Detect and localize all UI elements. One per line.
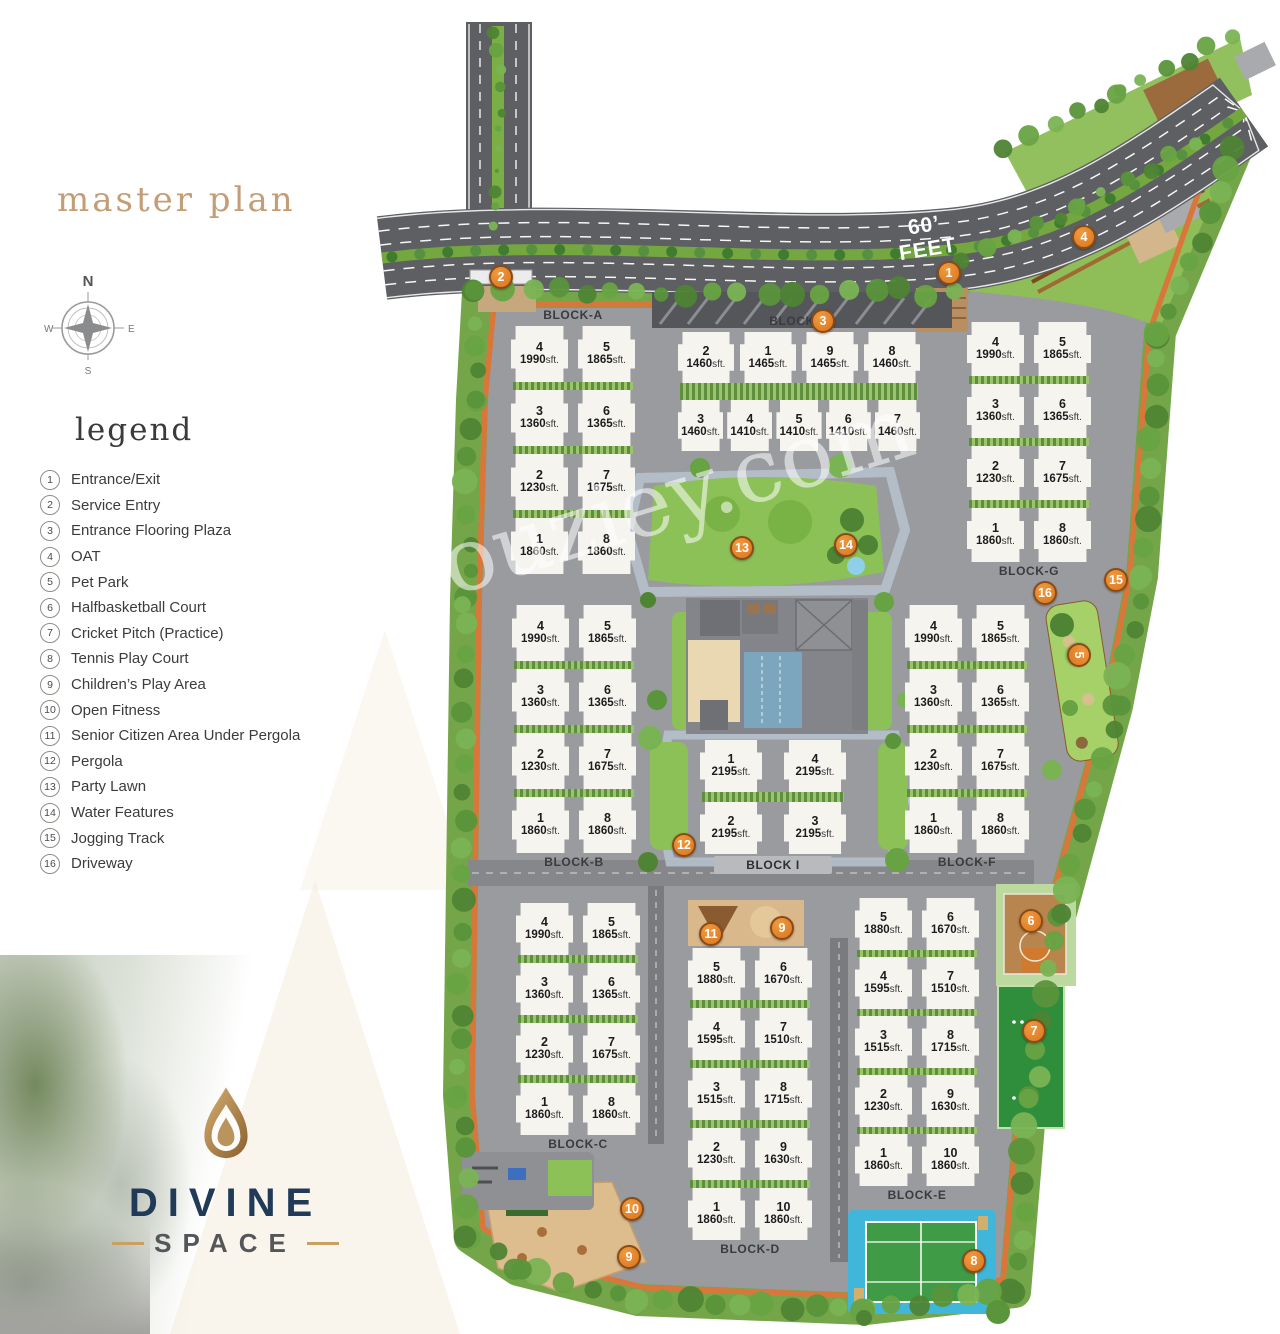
unit-number: 7 (947, 970, 954, 983)
marker-7: 7 (1022, 1019, 1046, 1043)
logo-subname: SPACE (108, 1228, 343, 1259)
legend-item-2: 2Service Entry (40, 493, 300, 519)
unit-block-i-4: 42195sft. (784, 740, 846, 792)
unit-number: 1 (992, 522, 999, 535)
unit-block-b-7: 71675sft. (579, 733, 636, 789)
unit-block-i-2: 22195sft. (700, 802, 762, 854)
unit-number: 5 (603, 341, 610, 354)
unit-row: 31460sft.41410sft.51410sft.61410sft.7146… (678, 400, 920, 451)
unit-number: 4 (812, 753, 819, 766)
green-strip (513, 446, 633, 454)
unit-row: 21230sft.91630sft. (855, 1075, 979, 1127)
unit-number: 6 (608, 976, 615, 989)
marker-15: 15 (1104, 568, 1128, 592)
legend-label: Open Fitness (71, 702, 160, 719)
unit-size: 1360sft. (914, 697, 953, 710)
unit-block-c-6: 61365sft. (583, 963, 640, 1015)
unit-number: 9 (780, 1141, 787, 1154)
unit-size: 1510sft. (931, 983, 970, 996)
unit-size: 1230sft. (976, 473, 1015, 486)
green-strip (514, 789, 634, 797)
unit-number: 3 (713, 1081, 720, 1094)
unit-number: 7 (1059, 460, 1066, 473)
unit-row: 41990sft.51865sft. (967, 322, 1091, 376)
unit-number: 2 (703, 345, 710, 358)
unit-block-b-5: 51865sft. (579, 605, 636, 661)
unit-number: 8 (604, 812, 611, 825)
green-strip (690, 1180, 810, 1188)
unit-size: 1860sft. (981, 825, 1020, 838)
unit-block-f-4: 41990sft. (905, 605, 962, 661)
green-strip (513, 382, 633, 390)
unit-size: 1860sft. (1043, 535, 1082, 548)
unit-block-e-3: 31515sft. (855, 1016, 912, 1068)
legend-number: 14 (40, 803, 60, 823)
unit-size: 1880sft. (864, 924, 903, 937)
compass-e: E (128, 324, 135, 335)
unit-block-f-6: 61365sft. (972, 669, 1029, 725)
unit-block-g-1: 11860sft. (967, 508, 1024, 562)
unit-size: 1365sft. (588, 697, 627, 710)
unit-size: 1675sft. (592, 1049, 631, 1062)
unit-number: 5 (1059, 336, 1066, 349)
marker-16: 16 (1033, 581, 1057, 605)
green-strip (857, 950, 977, 957)
unit-size: 1510sft. (764, 1034, 803, 1047)
unit-row: 21230sft.71675sft. (516, 1023, 640, 1075)
unit-number: 8 (1059, 522, 1066, 535)
marker-5: 5 (1067, 643, 1091, 667)
block-block-h: BLOCK-H21460sft.11465sft.91465sft.81460s… (678, 332, 920, 451)
unit-size: 2195sft. (796, 766, 835, 779)
unit-number: 7 (997, 748, 1004, 761)
marker-9: 9 (770, 916, 794, 940)
unit-row: 21230sft.71675sft. (511, 454, 635, 510)
unit-size: 1410sft. (829, 426, 868, 439)
logo-dash (112, 1242, 144, 1245)
green-strip (857, 1068, 977, 1075)
legend-label: Entrance/Exit (71, 471, 160, 488)
logo-subname-text: SPACE (154, 1228, 297, 1259)
legend-item-11: 11Senior Citizen Area Under Pergola (40, 723, 300, 749)
unit-row: 11860sft.81860sft. (512, 797, 636, 853)
unit-size: 1360sft. (976, 411, 1015, 424)
unit-size: 1360sft. (520, 418, 559, 431)
unit-size: 1860sft. (521, 825, 560, 838)
unit-size: 1860sft. (520, 546, 559, 559)
brand-logo: DIVINE SPACE (108, 1082, 343, 1259)
legend-item-14: 14Water Features (40, 800, 300, 826)
legend-item-15: 15Jogging Track (40, 825, 300, 851)
unit-block-c-2: 21230sft. (516, 1023, 573, 1075)
unit-number: 3 (697, 413, 704, 426)
green-strip (514, 661, 634, 669)
unit-row: 22195sft.32195sft. (700, 802, 846, 854)
unit-block-d-3: 31515sft. (688, 1068, 745, 1120)
green-strip (518, 955, 638, 963)
unit-block-d-2: 21230sft. (688, 1128, 745, 1180)
unit-number: 3 (930, 684, 937, 697)
marker-4: 4 (1072, 225, 1096, 249)
unit-block-a-1: 11860sft. (511, 518, 568, 574)
block-name-label: BLOCK-H (678, 312, 920, 330)
unit-number: 5 (796, 413, 803, 426)
unit-row: 31360sft.61365sft. (511, 390, 635, 446)
unit-size: 1365sft. (1043, 411, 1082, 424)
green-strip (518, 1015, 638, 1023)
unit-size: 1860sft. (931, 1160, 970, 1173)
unit-number: 1 (536, 533, 543, 546)
legend-item-12: 12Pergola (40, 749, 300, 775)
unit-size: 1460sft. (878, 426, 917, 439)
unit-size: 1630sft. (764, 1154, 803, 1167)
unit-number: 8 (780, 1081, 787, 1094)
unit-block-e-8: 81715sft. (922, 1016, 979, 1068)
legend-label: Senior Citizen Area Under Pergola (71, 727, 300, 744)
unit-block-c-3: 31360sft. (516, 963, 573, 1015)
legend-number: 11 (40, 726, 60, 746)
unit-block-f-2: 21230sft. (905, 733, 962, 789)
unit-block-h-8: 81460sft. (864, 332, 920, 383)
open-fitness-area (462, 1152, 594, 1210)
legend-label: Party Lawn (71, 778, 146, 795)
unit-block-e-1: 11860sft. (855, 1134, 912, 1186)
block-name-label: BLOCK-A (511, 306, 635, 324)
unit-size: 1230sft. (520, 482, 559, 495)
unit-size: 1465sft. (811, 358, 850, 371)
green-strip (702, 792, 844, 802)
unit-size: 1860sft. (864, 1160, 903, 1173)
unit-block-c-1: 11860sft. (516, 1083, 573, 1135)
unit-block-c-4: 41990sft. (516, 903, 573, 955)
block-block-i: 12195sft.42195sft.22195sft.32195sft.BLOC… (700, 740, 846, 874)
marker-9: 9 (617, 1245, 641, 1269)
block-name-label: BLOCK-C (516, 1135, 640, 1153)
unit-size: 1860sft. (525, 1109, 564, 1122)
green-strip (690, 1000, 810, 1008)
unit-block-h-9: 91465sft. (802, 332, 858, 383)
unit-number: 2 (728, 815, 735, 828)
unit-size: 1365sft. (587, 418, 626, 431)
unit-size: 1860sft. (914, 825, 953, 838)
green-strip (514, 725, 634, 733)
unit-size: 1990sft. (521, 633, 560, 646)
unit-size: 1715sft. (764, 1094, 803, 1107)
block-name-label: BLOCK-D (688, 1240, 812, 1258)
block-name-label: BLOCK-B (512, 853, 636, 871)
legend-item-7: 7Cricket Pitch (Practice) (40, 621, 300, 647)
unit-block-e-10: 101860sft. (922, 1134, 979, 1186)
block-block-b: 41990sft.51865sft.31360sft.61365sft.2123… (512, 605, 636, 871)
unit-block-h-6: 61410sft. (826, 400, 871, 451)
unit-block-g-3: 31360sft. (967, 384, 1024, 438)
legend-label: Pergola (71, 753, 123, 770)
logo-name: DIVINE (108, 1181, 343, 1226)
legend-number: 8 (40, 649, 60, 669)
unit-size: 1860sft. (587, 546, 626, 559)
unit-size: 1460sft. (681, 426, 720, 439)
unit-size: 1365sft. (981, 697, 1020, 710)
green-strip (680, 383, 918, 400)
unit-number: 3 (541, 976, 548, 989)
legend-number: 2 (40, 495, 60, 515)
legend-label: Cricket Pitch (Practice) (71, 625, 224, 642)
unit-block-d-7: 71510sft. (755, 1008, 812, 1060)
legend-item-9: 9Children’s Play Area (40, 672, 300, 698)
unit-number: 10 (944, 1147, 958, 1160)
marker-13: 13 (730, 536, 754, 560)
unit-number: 3 (537, 684, 544, 697)
unit-size: 1515sft. (697, 1094, 736, 1107)
unit-block-b-2: 21230sft. (512, 733, 569, 789)
unit-row: 41595sft.71510sft. (688, 1008, 812, 1060)
marker-14: 14 (834, 533, 858, 557)
legend-number: 15 (40, 828, 60, 848)
legend-label: Tennis Play Court (71, 650, 189, 667)
unit-block-b-4: 41990sft. (512, 605, 569, 661)
legend-list: 1Entrance/Exit2Service Entry3Entrance Fl… (40, 467, 300, 877)
legend-label: Children’s Play Area (71, 676, 206, 693)
unit-number: 3 (992, 398, 999, 411)
unit-size: 1675sft. (587, 482, 626, 495)
marker-6: 6 (1019, 909, 1043, 933)
unit-row: 31360sft.61365sft. (516, 963, 640, 1015)
unit-size: 1230sft. (914, 761, 953, 774)
green-strip (518, 1075, 638, 1083)
unit-block-a-2: 21230sft. (511, 454, 568, 510)
unit-number: 2 (880, 1088, 887, 1101)
unit-number: 5 (604, 620, 611, 633)
unit-block-c-5: 51865sft. (583, 903, 640, 955)
unit-size: 1630sft. (931, 1101, 970, 1114)
unit-block-a-7: 71675sft. (578, 454, 635, 510)
unit-number: 1 (765, 345, 772, 358)
unit-number: 8 (889, 345, 896, 358)
unit-size: 1865sft. (588, 633, 627, 646)
marker-3: 3 (811, 309, 835, 333)
unit-size: 1860sft. (592, 1109, 631, 1122)
legend-item-1: 1Entrance/Exit (40, 467, 300, 493)
unit-number: 4 (992, 336, 999, 349)
unit-block-b-8: 81860sft. (579, 797, 636, 853)
unit-block-f-3: 31360sft. (905, 669, 962, 725)
legend-number: 10 (40, 700, 60, 720)
legend-number: 7 (40, 623, 60, 643)
unit-number: 7 (603, 469, 610, 482)
unit-number: 6 (997, 684, 1004, 697)
unit-size: 1230sft. (525, 1049, 564, 1062)
unit-row: 11860sft.101860sft. (688, 1188, 812, 1240)
unit-number: 5 (880, 911, 887, 924)
green-strip (907, 661, 1027, 669)
unit-number: 9 (827, 345, 834, 358)
clubhouse (686, 598, 868, 734)
legend-number: 1 (40, 470, 60, 490)
legend-number: 5 (40, 572, 60, 592)
unit-number: 2 (713, 1141, 720, 1154)
unit-number: 6 (604, 684, 611, 697)
unit-number: 5 (713, 961, 720, 974)
flame-icon (190, 1082, 262, 1172)
unit-size: 2195sft. (796, 828, 835, 841)
unit-number: 7 (780, 1021, 787, 1034)
unit-row: 21230sft.71675sft. (905, 733, 1029, 789)
block-name-label: BLOCK-F (905, 853, 1029, 871)
unit-size: 1410sft. (780, 426, 819, 439)
unit-number: 2 (992, 460, 999, 473)
unit-size: 1675sft. (1043, 473, 1082, 486)
unit-size: 1670sft. (764, 974, 803, 987)
block-block-f: 41990sft.51865sft.31360sft.61365sft.2123… (905, 605, 1029, 871)
unit-size: 1595sft. (864, 983, 903, 996)
unit-number: 8 (608, 1096, 615, 1109)
legend-item-3: 3Entrance Flooring Plaza (40, 518, 300, 544)
unit-number: 5 (608, 916, 615, 929)
unit-row: 41990sft.51865sft. (516, 903, 640, 955)
unit-size: 1595sft. (697, 1034, 736, 1047)
unit-size: 1860sft. (588, 825, 627, 838)
unit-block-i-3: 32195sft. (784, 802, 846, 854)
legend-item-5: 5Pet Park (40, 569, 300, 595)
legend-item-13: 13Party Lawn (40, 774, 300, 800)
block-block-a: BLOCK-A41990sft.51865sft.31360sft.61365s… (511, 326, 635, 574)
unit-row: 11860sft.81860sft. (516, 1083, 640, 1135)
unit-number: 1 (728, 753, 735, 766)
water-feature (847, 557, 865, 575)
unit-block-b-1: 11860sft. (512, 797, 569, 853)
page-title: master plan (57, 180, 296, 220)
unit-row: 31515sft.81715sft. (688, 1068, 812, 1120)
legend-label: OAT (71, 548, 101, 565)
unit-block-g-2: 21230sft. (967, 446, 1024, 500)
unit-number: 5 (997, 620, 1004, 633)
unit-size: 2195sft. (712, 828, 751, 841)
unit-row: 31360sft.61365sft. (512, 669, 636, 725)
unit-number: 8 (947, 1029, 954, 1042)
legend-number: 4 (40, 547, 60, 567)
unit-number: 2 (541, 1036, 548, 1049)
unit-number: 4 (746, 413, 753, 426)
unit-row: 12195sft.42195sft. (700, 740, 846, 792)
logo-dash (307, 1242, 339, 1245)
unit-number: 7 (608, 1036, 615, 1049)
unit-number: 8 (997, 812, 1004, 825)
unit-block-d-6: 61670sft. (755, 948, 812, 1000)
unit-size: 2195sft. (712, 766, 751, 779)
unit-size: 1230sft. (697, 1154, 736, 1167)
unit-row: 31360sft.61365sft. (905, 669, 1029, 725)
unit-block-e-2: 21230sft. (855, 1075, 912, 1127)
legend-label: Halfbasketball Court (71, 599, 206, 616)
legend-item-16: 16Driveway (40, 851, 300, 877)
block-block-c: 41990sft.51865sft.31360sft.61365sft.2123… (516, 903, 640, 1153)
unit-number: 7 (894, 413, 901, 426)
legend-number: 12 (40, 751, 60, 771)
master-plan-page: 60’ FEET BLOCK-A41990sft.51865sft.31360s… (0, 0, 1280, 1334)
unit-block-e-7: 71510sft. (922, 957, 979, 1009)
unit-row: 31515sft.81715sft. (855, 1016, 979, 1068)
block-name-label: BLOCK I (714, 856, 832, 874)
unit-size: 1865sft. (592, 929, 631, 942)
unit-size: 1515sft. (864, 1042, 903, 1055)
legend-label: Service Entry (71, 497, 160, 514)
unit-block-d-5: 51880sft. (688, 948, 745, 1000)
unit-row: 31360sft.61365sft. (967, 384, 1091, 438)
unit-number: 4 (536, 341, 543, 354)
unit-number: 6 (1059, 398, 1066, 411)
legend-number: 16 (40, 854, 60, 874)
unit-number: 6 (780, 961, 787, 974)
unit-block-h-2: 21460sft. (678, 332, 734, 383)
unit-size: 1675sft. (588, 761, 627, 774)
marker-1: 1 (937, 261, 961, 285)
unit-size: 1410sft. (730, 426, 769, 439)
unit-number: 6 (947, 911, 954, 924)
unit-block-a-4: 41990sft. (511, 326, 568, 382)
unit-size: 1860sft. (697, 1214, 736, 1227)
block-block-e: 51880sft.61670sft.41595sft.71510sft.3151… (855, 898, 979, 1204)
unit-number: 1 (537, 812, 544, 825)
unit-size: 1860sft. (764, 1214, 803, 1227)
unit-row: 11860sft.81860sft. (967, 508, 1091, 562)
unit-row: 11860sft.81860sft. (905, 797, 1029, 853)
green-strip (513, 510, 633, 518)
green-strip (969, 376, 1089, 384)
unit-block-d-4: 41595sft. (688, 1008, 745, 1060)
unit-block-f-5: 51865sft. (972, 605, 1029, 661)
unit-block-h-4: 41410sft. (727, 400, 772, 451)
unit-row: 51880sft.61670sft. (855, 898, 979, 950)
legend-label: Water Features (71, 804, 174, 821)
unit-number: 6 (603, 405, 610, 418)
unit-number: 4 (930, 620, 937, 633)
unit-block-a-3: 31360sft. (511, 390, 568, 446)
unit-size: 1360sft. (521, 697, 560, 710)
unit-block-f-8: 81860sft. (972, 797, 1029, 853)
legend-item-10: 10Open Fitness (40, 697, 300, 723)
unit-block-f-7: 71675sft. (972, 733, 1029, 789)
unit-number: 4 (880, 970, 887, 983)
unit-block-e-9: 91630sft. (922, 1075, 979, 1127)
unit-row: 41595sft.71510sft. (855, 957, 979, 1009)
unit-block-d-8: 81715sft. (755, 1068, 812, 1120)
unit-block-e-5: 51880sft. (855, 898, 912, 950)
marker-11: 11 (699, 922, 723, 946)
unit-block-e-4: 41595sft. (855, 957, 912, 1009)
unit-size: 1860sft. (976, 535, 1015, 548)
unit-block-d-9: 91630sft. (755, 1128, 812, 1180)
unit-number: 4 (713, 1021, 720, 1034)
unit-block-h-3: 31460sft. (678, 400, 723, 451)
unit-block-i-1: 12195sft. (700, 740, 762, 792)
block-name-label: BLOCK-G (967, 562, 1091, 580)
legend-item-4: 4OAT (40, 544, 300, 570)
unit-block-g-5: 51865sft. (1034, 322, 1091, 376)
marker-8: 8 (962, 1249, 986, 1273)
unit-size: 1230sft. (521, 761, 560, 774)
legend-item-8: 8Tennis Play Court (40, 646, 300, 672)
unit-block-b-3: 31360sft. (512, 669, 569, 725)
unit-number: 2 (536, 469, 543, 482)
legend-title: legend (75, 412, 193, 448)
unit-size: 1990sft. (914, 633, 953, 646)
unit-size: 1990sft. (976, 349, 1015, 362)
unit-size: 1460sft. (873, 358, 912, 371)
unit-row: 21230sft.71675sft. (512, 733, 636, 789)
legend-number: 9 (40, 675, 60, 695)
green-strip (857, 1127, 977, 1134)
marker-2: 2 (489, 265, 513, 289)
